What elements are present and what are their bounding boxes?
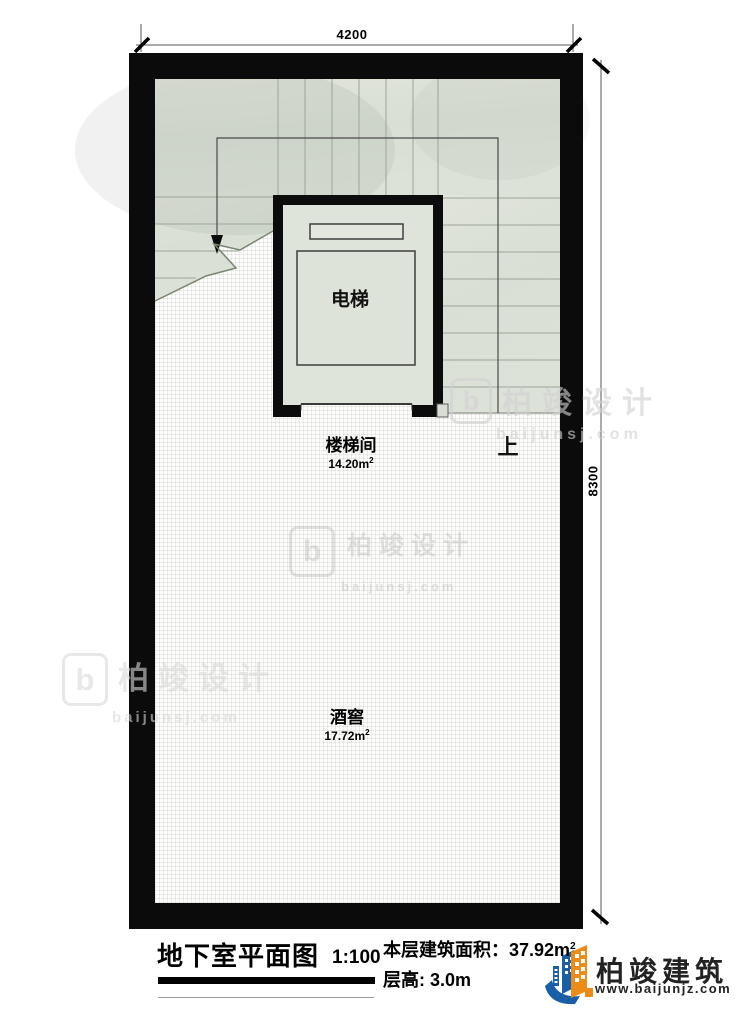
dimension-top-label: 4200 — [337, 27, 368, 42]
stairwell-name: 楼梯间 — [326, 431, 377, 456]
column-marker — [437, 404, 448, 417]
elevator-counterweight — [310, 224, 403, 239]
scale-label: 1:100 — [332, 947, 381, 969]
dimension-right-label: 8300 — [586, 466, 601, 497]
wine-cellar-name: 酒窖 — [324, 703, 369, 728]
title-underline-thin — [158, 997, 374, 998]
floor-height-label: 层高: 3.0m — [383, 966, 471, 992]
wine-cellar-area: 17.72m2 — [324, 728, 369, 743]
page-title: 地下室平面图 — [157, 936, 319, 973]
wine-cellar-room-label: 酒窖 17.72m2 — [324, 703, 369, 743]
total-area-label: 本层建筑面积：37.92m2 — [383, 936, 576, 962]
title-underline-thick — [158, 977, 375, 984]
plan-drawing — [0, 0, 750, 1012]
stairwell-area: 14.20m2 — [326, 456, 377, 471]
brand-website: www.baijunjz.com — [595, 981, 731, 996]
stair-up-label: 上 — [498, 431, 519, 461]
stairwell-room-label: 楼梯间 14.20m2 — [326, 431, 377, 471]
elevator-door — [301, 404, 412, 410]
floor-plan-page: 4200 8300 电梯 楼梯间 14.20m2 上 酒窖 17.72m2 b … — [0, 0, 750, 1012]
elevator-room-label: 电梯 — [331, 285, 369, 312]
